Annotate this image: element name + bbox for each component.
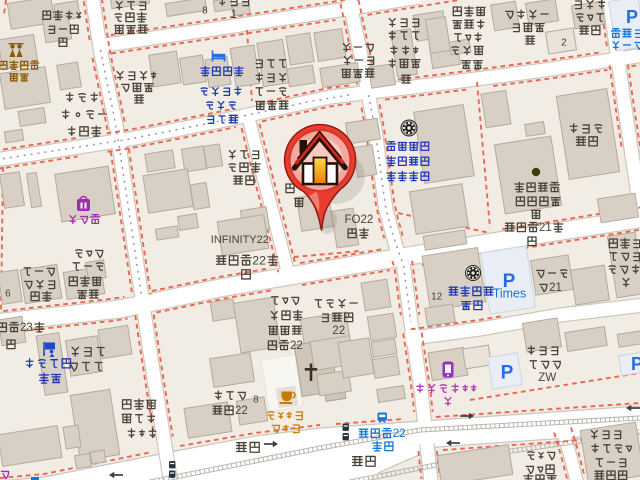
svg-text:8: 8: [253, 395, 259, 406]
svg-text:12: 12: [431, 292, 443, 303]
svg-text:P: P: [631, 354, 640, 374]
svg-text:6: 6: [5, 289, 11, 300]
svg-text:22: 22: [252, 253, 266, 267]
svg-text:22: 22: [332, 325, 345, 337]
svg-text:22: 22: [235, 405, 248, 417]
svg-text:22: 22: [290, 340, 303, 352]
svg-text:P: P: [626, 7, 638, 27]
svg-text:23: 23: [20, 322, 33, 334]
svg-text:22: 22: [393, 428, 406, 440]
svg-text:ZW: ZW: [538, 372, 556, 384]
svg-text:21: 21: [549, 282, 562, 294]
svg-text:21: 21: [539, 222, 552, 234]
svg-text:INFINITY22: INFINITY22: [211, 234, 269, 246]
svg-text:FO22: FO22: [345, 214, 374, 226]
svg-text:P: P: [501, 363, 514, 384]
svg-text:2: 2: [561, 38, 567, 49]
svg-text:8: 8: [202, 6, 208, 17]
svg-text:Times: Times: [493, 287, 527, 301]
svg-text:1: 1: [231, 9, 237, 21]
